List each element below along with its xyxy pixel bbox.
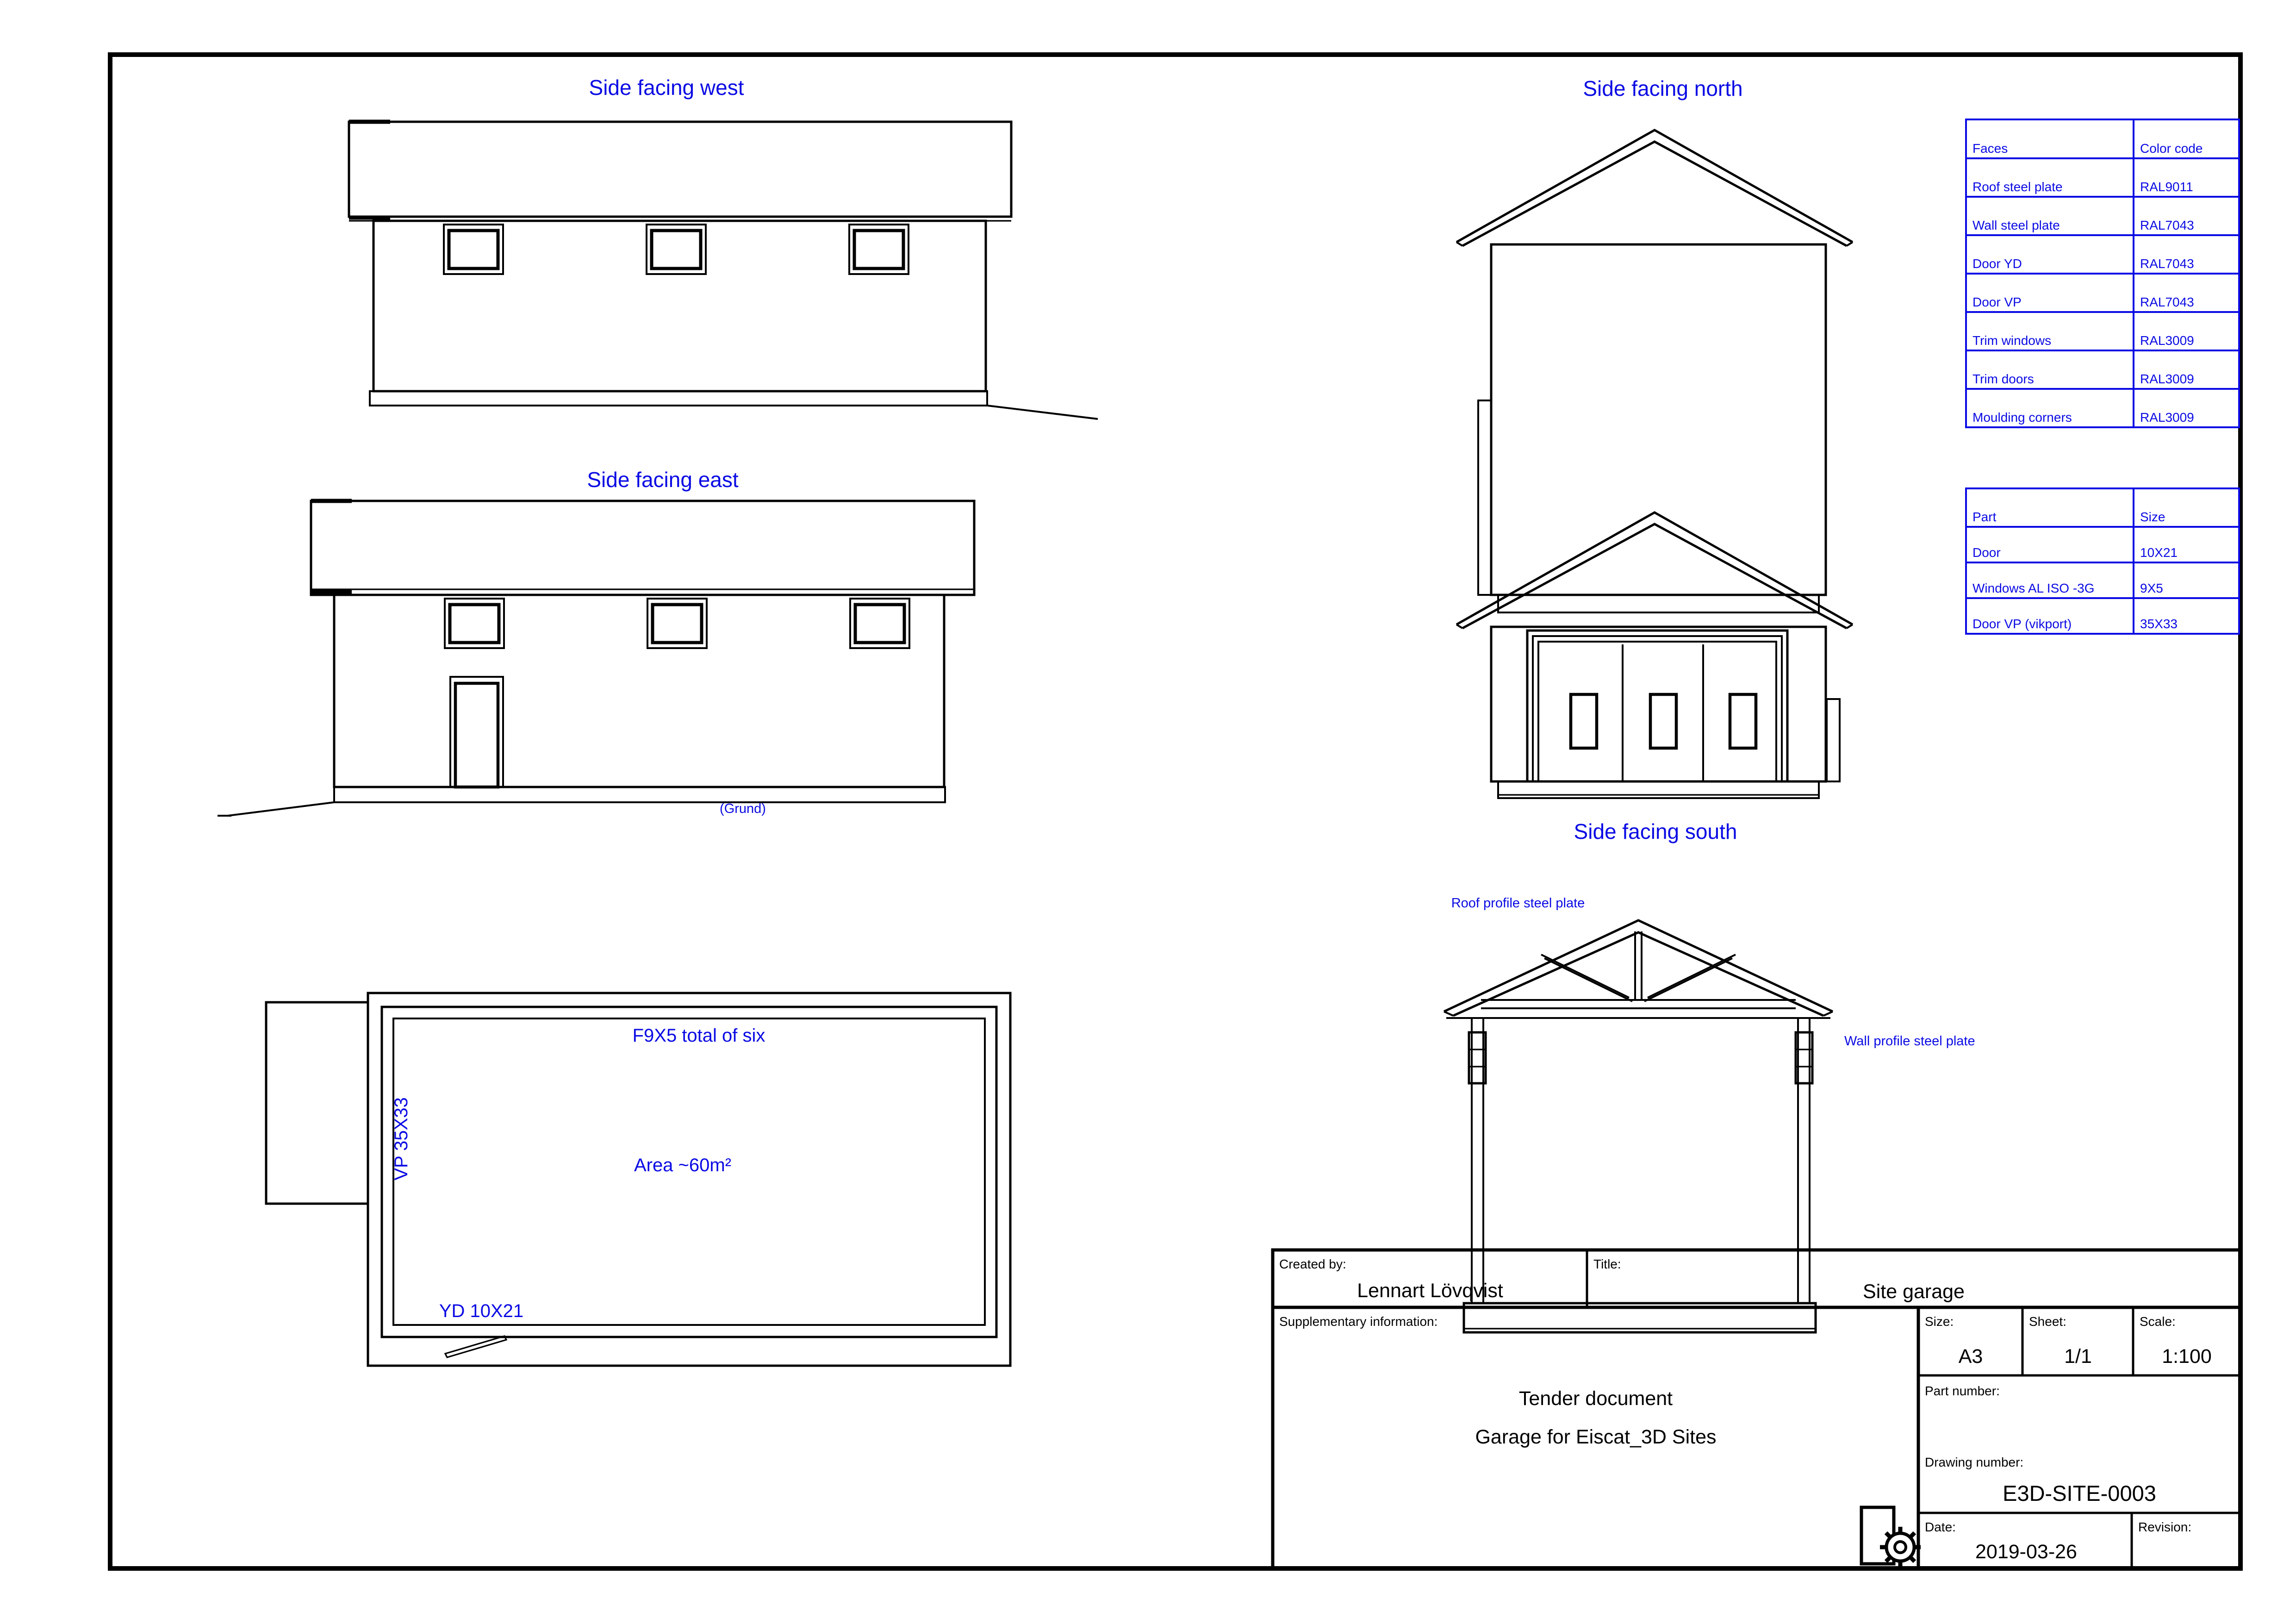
colors-cell: Trim doors (1972, 372, 2034, 386)
parts-cell: 10X21 (2140, 545, 2178, 560)
roof-profile-label: Roof profile steel plate (1451, 896, 1585, 911)
parts-table-border (1966, 488, 2239, 634)
south-vikport-frame-outer (1527, 631, 1787, 781)
date-label: Date: (1925, 1520, 1956, 1534)
colors-cell: Moulding corners (1972, 410, 2072, 425)
west-elevation-view: Side facing west (349, 75, 1098, 419)
south-vikport-window-3 (1730, 694, 1756, 748)
south-vikport-window-1 (1571, 694, 1597, 748)
section-left-eave-cap (1444, 1012, 1453, 1016)
plan-area-label: Area ~60m² (634, 1155, 731, 1175)
section-truss-diagonal-right-b (1644, 958, 1732, 1001)
east-door (455, 683, 498, 787)
section-truss-diagonal-left-a (1541, 955, 1629, 998)
colors-cell: RAL7043 (2140, 256, 2194, 271)
south-vikport-frame-inner (1538, 642, 1776, 781)
east-window-2 (653, 605, 702, 643)
floor-plan-view: F9X5 total of six VP 35X33 Area ~60m² YD… (266, 993, 1010, 1366)
parts-header-size: Size (2140, 510, 2165, 524)
gear-body (1886, 1533, 1914, 1561)
east-window-3 (855, 605, 904, 643)
east-elevation-view: Side facing east (Grund) (218, 468, 974, 816)
colors-cell: Door YD (1972, 256, 2022, 271)
south-elevation-view: Side facing south (1456, 512, 1853, 843)
colors-header-faces: Faces (1972, 141, 2008, 156)
created-by-label: Created by: (1279, 1257, 1346, 1271)
west-foundation (370, 391, 987, 406)
section-view: Roof profile steel plate Wall profile st… (1444, 896, 1975, 1332)
color-code-table: Faces Color code Roof steel plate RAL901… (1966, 119, 2239, 427)
drawing-number-value: E3D-SITE-0003 (2003, 1481, 2156, 1505)
south-open-door-leaf (1827, 699, 1840, 781)
north-view-title: Side facing north (1583, 76, 1742, 100)
supplementary-info-label: Supplementary information: (1279, 1314, 1437, 1329)
drawing-title-value: Site garage (1863, 1280, 1965, 1303)
east-ground-label: (Grund) (720, 801, 766, 816)
east-wall (334, 595, 944, 787)
south-view-title: Side facing south (1574, 819, 1737, 843)
wall-profile-label: Wall profile steel plate (1844, 1034, 1975, 1049)
north-roof-left-eave-cap (1456, 242, 1462, 246)
date-value: 2019-03-26 (1975, 1541, 2077, 1563)
plan-yd-door-swing-leaf (445, 1336, 506, 1357)
north-foundation (1498, 595, 1819, 612)
east-view-title: Side facing east (587, 468, 739, 492)
sheet-value: 1/1 (2064, 1345, 2092, 1368)
supplementary-line-1: Tender document (1519, 1387, 1673, 1410)
revision-label: Revision: (2138, 1520, 2191, 1534)
colors-cell: RAL3009 (2140, 410, 2194, 425)
plan-vp-label: VP 35X33 (391, 1097, 411, 1180)
colors-header-code: Color code (2140, 141, 2203, 156)
east-roof-band (311, 501, 974, 595)
north-roof-inner-line (1462, 142, 1847, 246)
plan-vikport-open-leaf (266, 1002, 368, 1204)
parts-cell: Windows AL ISO -3G (1972, 581, 2095, 595)
section-roof-outer-line (1444, 920, 1833, 1012)
colors-cell: RAL9011 (2140, 180, 2193, 194)
section-roof-inner-line (1453, 932, 1823, 1016)
west-wall (373, 221, 986, 391)
parts-cell: Door VP (vikport) (1972, 617, 2072, 631)
colors-cell: Wall steel plate (1972, 218, 2060, 232)
scale-value: 1:100 (2162, 1345, 2212, 1368)
south-roof-outer-line (1456, 512, 1853, 625)
section-truss-diagonal-left-b (1544, 958, 1632, 1001)
east-foundation (334, 787, 945, 802)
south-roof-right-eave-cap (1847, 625, 1853, 628)
south-vikport-window-2 (1650, 694, 1676, 748)
north-wall (1491, 244, 1826, 595)
north-elevation-view: Side facing north (1456, 76, 1853, 612)
west-window-3 (854, 231, 903, 269)
part-number-label: Part number: (1925, 1384, 2000, 1398)
drawing-sheet: Side facing west Side facing east (Gr (0, 0, 2296, 1624)
colors-cell: Roof steel plate (1972, 180, 2063, 194)
west-window-2 (652, 231, 701, 269)
colors-cell: Door VP (1972, 295, 2022, 309)
colors-cell: Trim windows (1972, 333, 2051, 348)
scale-label: Scale: (2140, 1314, 2176, 1329)
west-ground-slope-line (987, 406, 1098, 419)
parts-header-part: Part (1972, 510, 1997, 524)
colors-cell: RAL7043 (2140, 218, 2194, 232)
colors-cell: RAL7043 (2140, 295, 2194, 309)
plan-yd-label: YD 10X21 (439, 1301, 523, 1321)
drawing-number-label: Drawing number: (1925, 1455, 2023, 1469)
parts-cell: Door (1972, 545, 2001, 560)
size-value: A3 (1959, 1345, 1983, 1368)
west-roof-band (349, 122, 1011, 217)
part-size-table: Part Size Door 10X21 Windows AL ISO -3G … (1966, 488, 2239, 634)
title-label: Title: (1593, 1257, 1621, 1271)
title-block: Created by: Lennart Lövqvist Title: Site… (1273, 1250, 2240, 1568)
south-roof-left-eave-cap (1456, 625, 1462, 628)
created-by-value: Lennart Lövqvist (1357, 1280, 1503, 1302)
size-label: Size: (1925, 1314, 1954, 1329)
sheet-label: Sheet: (2029, 1314, 2066, 1329)
east-door-frame (450, 677, 503, 787)
north-open-door-leaf (1478, 400, 1491, 595)
west-window-1 (449, 231, 498, 269)
plan-windows-label: F9X5 total of six (633, 1025, 765, 1046)
east-ground-slope-line (228, 802, 334, 816)
parts-cell: 9X5 (2140, 581, 2163, 595)
parts-cell: 35X33 (2140, 617, 2178, 631)
east-window-1 (450, 605, 499, 643)
sheet-border (110, 55, 2240, 1568)
colors-cell: RAL3009 (2140, 372, 2194, 386)
west-view-title: Side facing west (589, 75, 744, 100)
section-truss-diagonal-right-a (1648, 955, 1736, 998)
colors-cell: RAL3009 (2140, 333, 2194, 348)
north-roof-right-eave-cap (1847, 242, 1853, 246)
north-roof-outer-line (1456, 130, 1853, 242)
supplementary-line-2: Garage for Eiscat_3D Sites (1475, 1426, 1716, 1448)
gear-document-icon (1861, 1507, 1921, 1568)
section-right-eave-cap (1823, 1012, 1833, 1016)
